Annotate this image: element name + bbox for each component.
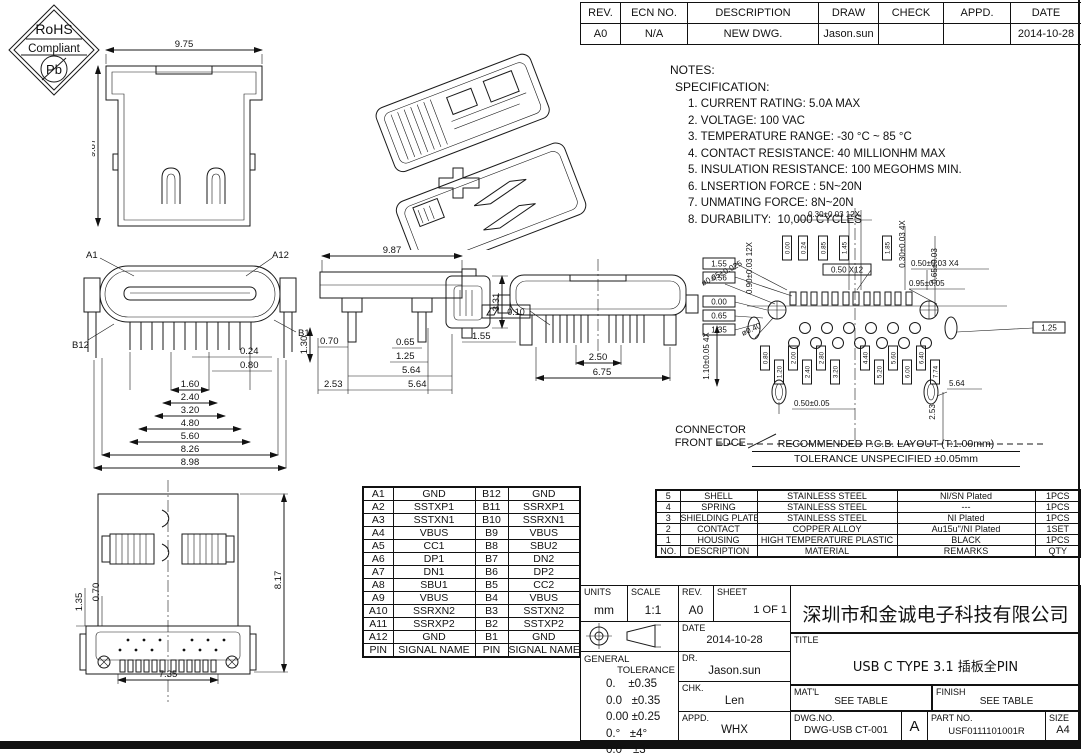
- table-cell: B6: [475, 566, 508, 579]
- table-cell: SSTXP2: [508, 618, 580, 631]
- title-value: USB C TYPE 3.1 插板全PIN: [791, 656, 1080, 675]
- table-cell: GND: [508, 631, 580, 644]
- table-row: A11SSRXP2B2SSTXP2: [363, 618, 580, 631]
- table-row: 2CONTACTCOPPER ALLOYAu15u"/NI Plated1SET: [656, 524, 1081, 535]
- svg-text:6.40: 6.40: [919, 351, 926, 364]
- table-cell: PIN: [475, 644, 508, 658]
- table-cell: 1: [656, 535, 680, 546]
- table-cell: SSRXN2: [393, 605, 475, 618]
- boxed-dim: 5.20: [875, 360, 884, 384]
- svg-text:7.74: 7.74: [933, 365, 940, 378]
- size-value: A4: [1046, 724, 1080, 736]
- general-tolerance-line2: TOLERANCE: [584, 665, 675, 676]
- table-row: REV.ECN NO.DESCRIPTIONDRAWCHECKAPPD.DATE: [581, 3, 1081, 24]
- table-row: NO.DESCRIPTIONMATERIALREMARKSQTY: [656, 546, 1081, 558]
- company-name: 深圳市和金诚电子科技有限公司: [791, 600, 1080, 627]
- rohs-badge: RoHS Compliant Pb: [6, 2, 102, 98]
- table-cell: 2014-10-28: [1011, 24, 1081, 45]
- dim-label: 4.80: [181, 418, 200, 429]
- table-cell: SBU2: [508, 540, 580, 553]
- dim-label: 0.70: [91, 583, 102, 602]
- table-cell: NO.: [656, 546, 680, 558]
- table-cell: DP1: [393, 553, 475, 566]
- dim-label: ø0.40: [740, 321, 763, 338]
- pin-label-a12: A12: [272, 250, 289, 261]
- table-row: A10SSRXN2B3SSTXN2: [363, 605, 580, 618]
- table-cell: CONTACT: [680, 524, 757, 535]
- dim-label: 1.25: [396, 351, 415, 362]
- svg-text:0.80: 0.80: [763, 351, 770, 364]
- frame-rev-value: A: [902, 718, 927, 735]
- table-cell: 5: [656, 490, 680, 502]
- svg-text:0.00: 0.00: [785, 241, 792, 254]
- flatness-value: 0.10: [507, 307, 525, 317]
- note-item: 0.00 ±0.25: [588, 709, 675, 726]
- finish-cell: FINISH SEE TABLE: [932, 685, 1081, 711]
- pcb-caption-line1: RECOMMENDED P.C.B. LAYOUT (T:1.00mm): [752, 438, 1020, 452]
- svg-text:4.40: 4.40: [863, 351, 870, 364]
- dim-label: 5.64: [408, 379, 427, 390]
- date-value: 2014-10-28: [679, 634, 790, 646]
- pcb-caption-line2: TOLERANCE UNSPECIFIED ±0.05mm: [752, 452, 1020, 467]
- table-cell: STAINLESS STEEL: [757, 490, 897, 502]
- table-cell: PIN: [363, 644, 393, 658]
- dim-label: 6.75: [593, 367, 612, 378]
- table-cell: APPD.: [944, 3, 1011, 24]
- dim-label: 1.60: [181, 379, 200, 390]
- table-cell: COPPER ALLOY: [757, 524, 897, 535]
- table-cell: 1PCS: [1035, 535, 1081, 546]
- rohs-line2: Compliant: [28, 43, 81, 55]
- line-art: [76, 480, 288, 702]
- table-cell: STAINLESS STEEL: [757, 513, 897, 524]
- note-item: 0.° ±4°: [588, 726, 675, 743]
- boxed-dim: 1.45: [840, 236, 849, 260]
- boxed-dim: 2.80: [817, 346, 826, 370]
- revision-table: REV.ECN NO.DESCRIPTIONDRAWCHECKAPPD.DATE…: [580, 2, 1081, 45]
- table-row: 5SHELLSTAINLESS STEELNI/SN Plated1PCS: [656, 490, 1081, 502]
- table-cell: A10: [363, 605, 393, 618]
- table-cell: A3: [363, 514, 393, 527]
- svg-text:0.24: 0.24: [801, 241, 808, 254]
- pin-label-b12: B12: [72, 340, 89, 351]
- table-row: A1GNDB12GND: [363, 487, 580, 501]
- svg-text:1.25: 1.25: [1041, 324, 1057, 333]
- appd-label: APPD.: [682, 713, 709, 723]
- table-cell: 3: [656, 513, 680, 524]
- notes-subtitle: SPECIFICATION:: [670, 79, 1080, 96]
- pin-label-a1: A1: [86, 250, 98, 261]
- company-cell: 深圳市和金诚电子科技有限公司: [790, 585, 1081, 633]
- table-cell: SIGNAL NAME: [508, 644, 580, 658]
- dim-label: 0.65: [396, 337, 415, 348]
- table-cell: NI Plated: [897, 513, 1035, 524]
- svg-text:1.35: 1.35: [711, 326, 727, 335]
- svg-text:1.85: 1.85: [885, 241, 892, 254]
- pcb-caption: RECOMMENDED P.C.B. LAYOUT (T:1.00mm) TOL…: [752, 438, 1020, 467]
- general-tolerance-line1: GENERAL: [584, 654, 675, 665]
- svg-text:0.56: 0.56: [711, 274, 727, 283]
- table-cell: A12: [363, 631, 393, 644]
- table-cell: B10: [475, 514, 508, 527]
- table-row: A4VBUSB9VBUS: [363, 527, 580, 540]
- title-block: UNITS mm SCALE 1:1 REV. A0 SHEET 1 OF 1 …: [580, 585, 1081, 741]
- table-cell: DESCRIPTION: [680, 546, 757, 558]
- table-cell: Au15u"/NI Plated: [897, 524, 1035, 535]
- front-edge-line1: CONNECTOR: [660, 424, 746, 437]
- units-value: mm: [581, 603, 627, 617]
- boxed-dim: 1.25: [1033, 322, 1065, 333]
- table-cell: DRAW: [819, 3, 879, 24]
- table-cell: 4: [656, 502, 680, 513]
- drawing-sheet: REV.ECN NO.DESCRIPTIONDRAWCHECKAPPD.DATE…: [0, 0, 1081, 754]
- dim-label: 2.53: [928, 404, 937, 420]
- svg-text:1.55: 1.55: [711, 260, 727, 269]
- units-cell: UNITS mm: [580, 585, 628, 622]
- dwg-no-cell: DWG.NO. DWG-USB CT-001: [790, 711, 902, 741]
- table-cell: REV.: [581, 3, 621, 24]
- table-cell: Jason.sun: [819, 24, 879, 45]
- svg-text:6.00: 6.00: [905, 365, 912, 378]
- table-cell: B3: [475, 605, 508, 618]
- view-bottom: 0.10 2.50 6.75: [480, 255, 705, 405]
- table-cell: NEW DWG.: [688, 24, 819, 45]
- table-cell: SBU1: [393, 579, 475, 592]
- table-cell: DESCRIPTION: [688, 3, 819, 24]
- scale-cell: SCALE 1:1: [627, 585, 679, 622]
- table-cell: SSTXP1: [393, 501, 475, 514]
- tolerance-list: 0. ±0.350.0 ±0.350.00 ±0.250.° ±4°0.0° ±…: [584, 676, 675, 754]
- boxed-dim: 1.85: [883, 236, 892, 260]
- table-cell: A5: [363, 540, 393, 553]
- dim-label: 9.75: [175, 39, 194, 50]
- table-cell: SSTXN2: [508, 605, 580, 618]
- table-cell: VBUS: [393, 592, 475, 605]
- dim-label: 2.50: [589, 352, 608, 363]
- table-cell: VBUS: [393, 527, 475, 540]
- dim-label: 2.53: [324, 379, 343, 390]
- general-tolerance-cell: GENERAL TOLERANCE 0. ±0.350.0 ±0.350.00 …: [580, 651, 679, 741]
- table-cell: A6: [363, 553, 393, 566]
- title-label: TITLE: [794, 635, 819, 645]
- table-cell: B4: [475, 592, 508, 605]
- rohs-line1: RoHS: [35, 21, 72, 37]
- matl-value: SEE TABLE: [791, 696, 931, 707]
- pcb-front-edge-label: CONNECTOR FRONT EDCE: [660, 424, 746, 450]
- table-cell: [944, 24, 1011, 45]
- table-row: A9VBUSB4VBUS: [363, 592, 580, 605]
- scale-label: SCALE: [631, 587, 661, 597]
- pin-assignment-table: A1GNDB12GNDA2SSTXP1B11SSRXP1A3SSTXN1B10S…: [362, 486, 581, 658]
- table-row: PINSIGNAL NAMEPINSIGNAL NAME: [363, 644, 580, 658]
- note-item: 2. VOLTAGE: 100 VAC: [670, 113, 1080, 130]
- svg-text:2.80: 2.80: [819, 351, 826, 364]
- notes-block: NOTES: SPECIFICATION: 1. CURRENT RATING:…: [670, 62, 1080, 228]
- table-cell: DN1: [393, 566, 475, 579]
- boxed-dim: 0.24: [799, 236, 808, 260]
- table-cell: A2: [363, 501, 393, 514]
- svg-text:5.60: 5.60: [891, 351, 898, 364]
- note-item: 6. LNSERTION FORCE : 5N~20N: [670, 179, 1080, 196]
- date-cell: DATE 2014-10-28: [678, 621, 791, 652]
- sheet-value: 1 OF 1: [714, 604, 790, 616]
- table-cell: DP2: [508, 566, 580, 579]
- dim-label: 0.24: [240, 346, 259, 357]
- dwg-no-label: DWG.NO.: [794, 713, 835, 723]
- dim-label: 0.95±0.05: [909, 279, 945, 288]
- dim-label: 1.30: [299, 336, 310, 355]
- front-edge-line2: FRONT EDCE: [660, 437, 746, 450]
- table-cell: B12: [475, 487, 508, 501]
- table-cell: ---: [897, 502, 1035, 513]
- table-row: A8SBU1B5CC2: [363, 579, 580, 592]
- table-cell: NI/SN Plated: [897, 490, 1035, 502]
- view-top: 9.75 9.87: [92, 36, 277, 236]
- rev-label: REV.: [682, 587, 702, 597]
- dim-label: 5.60: [181, 431, 200, 442]
- table-cell: SSRXN1: [508, 514, 580, 527]
- dim-label: 8.26: [181, 444, 200, 455]
- chk-cell: CHK. Len: [678, 681, 791, 712]
- table-cell: 1PCS: [1035, 490, 1081, 502]
- table-row: 1HOUSINGHIGH TEMPERATURE PLASTICBLACK1PC…: [656, 535, 1081, 546]
- note-item: 4. CONTACT RESISTANCE: 40 MILLIONHM MAX: [670, 146, 1080, 163]
- table-cell: HIGH TEMPERATURE PLASTIC: [757, 535, 897, 546]
- boxed-dim: 0.00: [703, 296, 735, 307]
- svg-text:0.00: 0.00: [711, 298, 727, 307]
- svg-text:5.20: 5.20: [877, 365, 884, 378]
- table-cell: SIGNAL NAME: [393, 644, 475, 658]
- boxed-dim: 0.85: [819, 236, 828, 260]
- boxed-dim: 0.80: [761, 346, 770, 370]
- bom-table: 5SHELLSTAINLESS STEELNI/SN Plated1PCS4SP…: [655, 489, 1081, 558]
- table-row: A3SSTXN1B10SSRXN1: [363, 514, 580, 527]
- dim-label: 2.40: [181, 392, 200, 403]
- size-label: SIZE: [1049, 713, 1069, 723]
- table-cell: CHECK: [879, 3, 944, 24]
- boxed-dim: 6.40: [917, 346, 926, 370]
- projection-symbol-cell: [580, 621, 679, 652]
- part-no-value: USF0111101001R: [928, 726, 1045, 737]
- table-cell: SSTXN1: [393, 514, 475, 527]
- table-cell: DATE: [1011, 3, 1081, 24]
- dim-label: 0.30±0.03 12X: [808, 210, 861, 219]
- table-cell: SHELL: [680, 490, 757, 502]
- table-cell: B5: [475, 579, 508, 592]
- boxed-dim: 2.40: [803, 360, 812, 384]
- table-cell: A8: [363, 579, 393, 592]
- table-cell: DN2: [508, 553, 580, 566]
- table-cell: HOUSING: [680, 535, 757, 546]
- rev-cell: REV. A0: [678, 585, 714, 622]
- table-cell: A0: [581, 24, 621, 45]
- table-cell: MATERIAL: [757, 546, 897, 558]
- dim-label: 8.98: [181, 457, 200, 468]
- scale-value: 1:1: [628, 603, 678, 617]
- table-row: 3SHIELDING PLATESTAINLESS STEELNI Plated…: [656, 513, 1081, 524]
- table-cell: CC2: [508, 579, 580, 592]
- table-cell: A11: [363, 618, 393, 631]
- dim-label: 0.50±0.05: [794, 399, 830, 408]
- dim-label: 0.80: [240, 360, 259, 371]
- table-cell: VBUS: [508, 527, 580, 540]
- table-row: 4SPRINGSTAINLESS STEEL---1PCS: [656, 502, 1081, 513]
- boxed-dim: 0.50 X12: [823, 264, 871, 275]
- table-cell: GND: [393, 631, 475, 644]
- dim-label: 5.64: [402, 365, 421, 376]
- table-cell: 1PCS: [1035, 513, 1081, 524]
- table-cell: SPRING: [680, 502, 757, 513]
- units-label: UNITS: [584, 587, 611, 597]
- table-cell: SSRXP2: [393, 618, 475, 631]
- dr-cell: DR. Jason.sun: [678, 651, 791, 682]
- table-row: A2SSTXP1B11SSRXP1: [363, 501, 580, 514]
- table-cell: STAINLESS STEEL: [757, 502, 897, 513]
- table-row: A0N/ANEW DWG.Jason.sun2014-10-28: [581, 24, 1081, 45]
- appd-value: WHX: [679, 724, 790, 736]
- svg-text:1.45: 1.45: [842, 241, 849, 254]
- finish-value: SEE TABLE: [933, 696, 1080, 707]
- table-row: A6DP1B7DN2: [363, 553, 580, 566]
- dim-label: 0.70: [320, 336, 339, 347]
- boxed-dim: 5.60: [889, 346, 898, 370]
- dim-label: 9.87: [383, 245, 402, 256]
- table-cell: GND: [508, 487, 580, 501]
- table-cell: A9: [363, 592, 393, 605]
- table-cell: CC1: [393, 540, 475, 553]
- view-rear: 8.17 1.35 0.70 7.35: [58, 476, 308, 706]
- note-item: 1. CURRENT RATING: 5.0A MAX: [670, 96, 1080, 113]
- table-cell: B7: [475, 553, 508, 566]
- table-cell: [879, 24, 944, 45]
- dim-label: 0.90±0.03 12X: [745, 241, 754, 294]
- svg-text:0.85: 0.85: [821, 241, 828, 254]
- sheet-label: SHEET: [717, 587, 747, 597]
- view-exploded: [325, 50, 615, 250]
- svg-text:2.00: 2.00: [791, 351, 798, 364]
- dim-label: 8.17: [273, 571, 284, 590]
- table-cell: SHIELDING PLATE: [680, 513, 757, 524]
- dr-value: Jason.sun: [679, 665, 790, 677]
- table-cell: A1: [363, 487, 393, 501]
- boxed-dim: 4.40: [861, 346, 870, 370]
- dim-label: 9.87: [92, 139, 98, 158]
- table-cell: B9: [475, 527, 508, 540]
- note-item: 0.0 ±0.35: [588, 693, 675, 710]
- dwg-no-value: DWG-USB CT-001: [791, 725, 901, 736]
- table-cell: REMARKS: [897, 546, 1035, 558]
- note-item: 3. TEMPERATURE RANGE: -30 °C ~ 85 °C: [670, 129, 1080, 146]
- chk-value: Len: [679, 695, 790, 707]
- note-item: 0. ±0.35: [588, 676, 675, 693]
- table-cell: SSRXP1: [508, 501, 580, 514]
- line-art: [373, 52, 588, 250]
- table-cell: VBUS: [508, 592, 580, 605]
- svg-text:1.20: 1.20: [777, 365, 784, 378]
- rohs-line3: Pb: [46, 62, 62, 77]
- projection-symbol-icon: [581, 622, 678, 651]
- dim-label: 5.64: [949, 379, 965, 388]
- svg-text:0.50 X12: 0.50 X12: [831, 266, 864, 275]
- boxed-dim: 6.00: [903, 360, 912, 384]
- chk-label: CHK.: [682, 683, 704, 693]
- dim-label: 1.10±0.05 4X: [702, 332, 711, 380]
- boxed-dim: 0.00: [783, 236, 792, 260]
- svg-text:2.40: 2.40: [805, 365, 812, 378]
- svg-text:0.65: 0.65: [711, 312, 727, 321]
- table-cell: B11: [475, 501, 508, 514]
- line-art: [98, 50, 262, 226]
- part-no-label: PART NO.: [931, 713, 973, 723]
- table-row: A7DN1B6DP2: [363, 566, 580, 579]
- table-cell: A4: [363, 527, 393, 540]
- dim-label: 7.35: [159, 669, 178, 680]
- table-cell: GND: [393, 487, 475, 501]
- table-cell: 1PCS: [1035, 502, 1081, 513]
- size-cell: SIZE A4: [1045, 711, 1081, 741]
- table-cell: N/A: [621, 24, 688, 45]
- table-cell: QTY: [1035, 546, 1081, 558]
- svg-text:3.20: 3.20: [833, 365, 840, 378]
- dr-label: DR.: [682, 653, 698, 663]
- table-cell: 2: [656, 524, 680, 535]
- dim-label: 0.30±0.03 4X: [898, 220, 907, 268]
- dim-label: 3.20: [181, 405, 200, 416]
- note-item: 5. INSULATION RESISTANCE: 100 MEGOHMS MI…: [670, 162, 1080, 179]
- boxed-dim: 2.00: [789, 346, 798, 370]
- matl-cell: MAT'L SEE TABLE: [790, 685, 932, 711]
- table-cell: 1SET: [1035, 524, 1081, 535]
- dim-label: 0.65±0.03: [930, 248, 939, 284]
- boxed-dim: 0.65: [703, 310, 735, 321]
- title-cell: TITLE USB C TYPE 3.1 插板全PIN: [790, 633, 1081, 685]
- table-cell: ECN NO.: [621, 3, 688, 24]
- boxed-dim: 3.20: [831, 360, 840, 384]
- table-cell: A7: [363, 566, 393, 579]
- dim-label: 1.35: [74, 593, 85, 612]
- rev-value: A0: [679, 603, 713, 617]
- note-item: 0.0° ±3°: [588, 742, 675, 754]
- appd-cell: APPD. WHX: [678, 711, 791, 741]
- table-cell: B2: [475, 618, 508, 631]
- part-no-cell: PART NO. USF0111101001R: [927, 711, 1046, 741]
- table-cell: BLACK: [897, 535, 1035, 546]
- table-row: A5CC1B8SBU2: [363, 540, 580, 553]
- sheet-cell: SHEET 1 OF 1: [713, 585, 791, 622]
- table-row: A12GNDB1GND: [363, 631, 580, 644]
- notes-title: NOTES:: [670, 62, 1080, 79]
- frame-rev-cell: A: [901, 711, 928, 741]
- table-cell: B8: [475, 540, 508, 553]
- date-label: DATE: [682, 623, 705, 633]
- table-cell: B1: [475, 631, 508, 644]
- sheet-bottom-border: [0, 741, 1081, 749]
- view-front: A1 A12 B12 B1 0.24 0.80 1.60 2.40 3.20 4…: [72, 240, 322, 472]
